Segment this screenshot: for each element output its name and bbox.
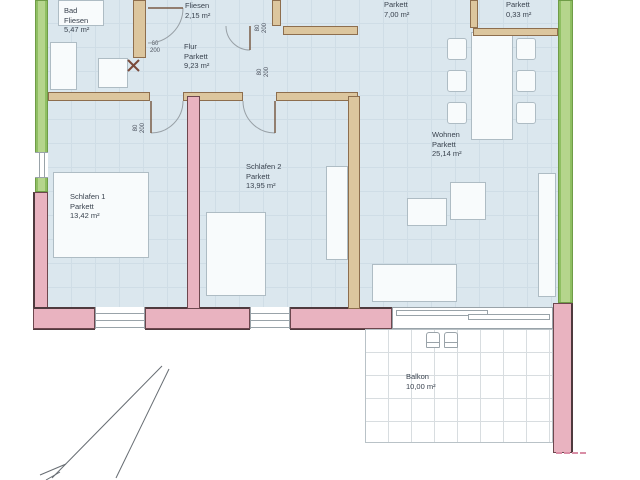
door-arc-schlafen1 [151,101,183,133]
site-boundary-line [52,366,162,478]
door-arc-bad [148,8,183,43]
site-tick-mark [46,472,60,480]
door-arc-wc [226,26,250,50]
site-tick-mark [40,464,66,475]
plan-overlay [0,0,640,480]
door-arc-schlafen2 [243,101,275,133]
floor-plan-canvas: Bad Fliesen 5,47 m² Fliesen 2,15 m² Flur… [0,0,640,480]
